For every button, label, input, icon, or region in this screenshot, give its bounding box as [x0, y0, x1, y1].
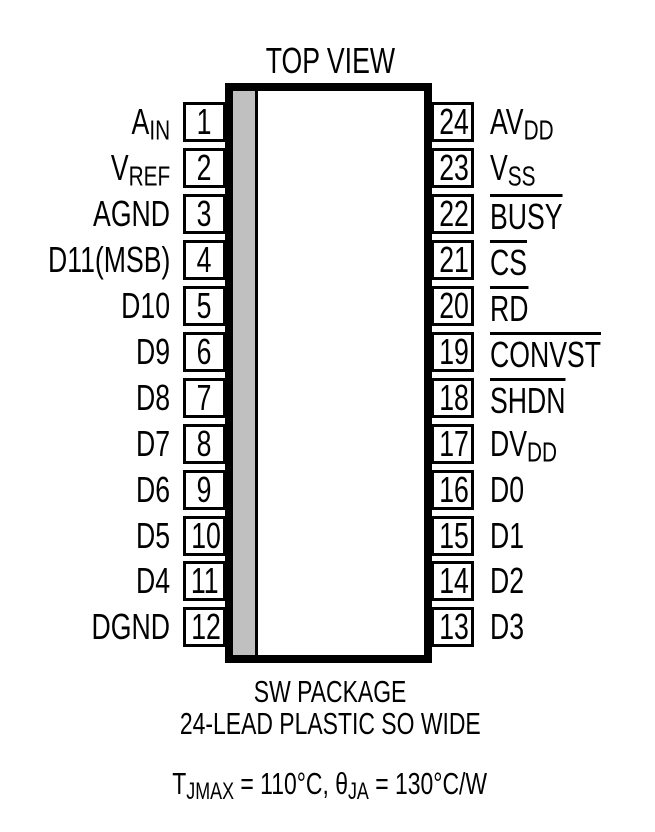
pin-11-label-text: D4	[136, 560, 170, 601]
pin-17-label: DVDD	[490, 424, 655, 464]
pin-8-label: D7	[0, 424, 170, 464]
pin-17-box: 17	[431, 424, 474, 464]
pin-15-number: 15	[439, 519, 469, 552]
pin-19-label: CONVST	[490, 332, 655, 372]
pin-22-number: 22	[439, 197, 469, 230]
pin-16-label: D0	[490, 470, 655, 510]
pin-16-box: 16	[431, 470, 474, 510]
pin-16-label-text: D0	[490, 469, 524, 510]
pin-23-label-text: V	[490, 147, 508, 188]
pin-24-label-sub: DD	[524, 115, 554, 146]
pin-17-label-sub: DD	[527, 437, 557, 468]
pin-15-label-text: D1	[490, 515, 524, 556]
pin-7-label-text: D8	[136, 377, 170, 418]
pin-4-label-text: D11(MSB)	[48, 239, 170, 280]
pin-5-label: D10	[0, 286, 170, 326]
pin-7-box: 7	[183, 378, 226, 418]
pin-20-number: 20	[439, 289, 469, 322]
pin-2-label-text: V	[111, 147, 129, 188]
pin-24-label-text: AV	[490, 101, 524, 142]
pin-21-box: 21	[431, 240, 474, 280]
pin-23-label: VSS	[490, 148, 655, 188]
pin-8-label-text: D7	[136, 423, 170, 464]
pin-10-box: 10	[183, 516, 226, 556]
pin-1-box: 1	[183, 102, 226, 142]
pin-9-number: 9	[197, 473, 212, 506]
pin-22-label: BUSY	[490, 194, 655, 234]
pin-2-box: 2	[183, 148, 226, 188]
pin-19-number: 19	[439, 335, 469, 368]
pin1-indicator-stripe	[233, 91, 258, 655]
pin-8-number: 8	[197, 427, 212, 460]
pin-14-label: D2	[490, 561, 655, 601]
pin-14-label-text: D2	[490, 560, 524, 601]
pin-24-label: AVDD	[490, 102, 655, 142]
pin-19-box: 19	[431, 332, 474, 372]
pin-12-label-text: DGND	[92, 606, 170, 647]
pin-15-label: D1	[490, 516, 655, 556]
pinout-diagram: TOP VIEW AIN VREF AGND D11(MSB) D10 D9 D…	[0, 0, 655, 832]
pin-7-number: 7	[197, 381, 212, 414]
pin-8-box: 8	[183, 424, 226, 464]
top-view-text: TOP VIEW	[265, 41, 394, 81]
pin-2-number: 2	[197, 151, 212, 184]
thermal-note-text: TJMAX = 110°C, θJA = 130°C/W	[173, 764, 488, 812]
pin-18-number: 18	[439, 381, 469, 414]
pin-18-label-text: SHDN	[490, 378, 565, 421]
pin-10-number: 10	[191, 519, 221, 552]
pin-15-box: 15	[431, 516, 474, 556]
thermal-note: TJMAX = 110°C, θJA = 130°C/W	[0, 764, 655, 804]
pin-20-label-text: RD	[490, 286, 528, 329]
pin-21-label-text: CS	[490, 240, 527, 283]
pin-10-label: D5	[0, 516, 170, 556]
package-description-text: 24-LEAD PLASTIC SO WIDE	[180, 704, 481, 744]
pin-5-box: 5	[183, 286, 226, 326]
pin-6-label-text: D9	[136, 331, 170, 372]
pin-18-label: SHDN	[490, 378, 655, 418]
pin-3-number: 3	[197, 197, 212, 230]
pin-10-label-text: D5	[136, 515, 170, 556]
pin-4-label: D11(MSB)	[0, 240, 170, 280]
pin-18-box: 18	[431, 378, 474, 418]
pin-23-label-sub: SS	[508, 161, 536, 192]
pin-4-number: 4	[197, 243, 212, 276]
pin-7-label: D8	[0, 378, 170, 418]
pin-13-label: D3	[490, 607, 655, 647]
pin-5-number: 5	[197, 289, 212, 322]
pin-22-label-text: BUSY	[490, 194, 563, 237]
pin-9-label: D6	[0, 470, 170, 510]
pin-9-label-text: D6	[136, 469, 170, 510]
pin-14-number: 14	[439, 564, 469, 597]
pin-23-number: 23	[439, 151, 469, 184]
pin-5-label-text: D10	[121, 285, 170, 326]
pin-11-label: D4	[0, 561, 170, 601]
pin-19-label-text: CONVST	[490, 332, 601, 375]
pin-13-number: 13	[439, 610, 469, 643]
pin-24-box: 24	[431, 102, 474, 142]
pin-17-number: 17	[439, 427, 469, 460]
pin-3-box: 3	[183, 194, 226, 234]
pin-23-box: 23	[431, 148, 474, 188]
pin-13-box: 13	[431, 607, 474, 647]
pin-1-label-text: A	[131, 101, 149, 142]
pin-2-label-sub: REF	[128, 161, 170, 192]
pin-2-label: VREF	[0, 148, 170, 188]
pin-1-label-sub: IN	[149, 115, 170, 146]
pin-24-number: 24	[439, 105, 469, 138]
pin-12-label: DGND	[0, 607, 170, 647]
pin-1-label: AIN	[0, 102, 170, 142]
pin-12-number: 12	[191, 610, 221, 643]
pin-3-label: AGND	[0, 194, 170, 234]
pin-3-label-text: AGND	[93, 193, 170, 234]
pin-21-label: CS	[490, 240, 655, 280]
pin-4-box: 4	[183, 240, 226, 280]
pin-6-box: 6	[183, 332, 226, 372]
package-description: 24-LEAD PLASTIC SO WIDE	[0, 704, 655, 744]
pin-9-box: 9	[183, 470, 226, 510]
pin-20-label: RD	[490, 286, 655, 326]
pin-22-box: 22	[431, 194, 474, 234]
pin-6-number: 6	[197, 335, 212, 368]
pin-21-number: 21	[439, 243, 469, 276]
pin-17-label-text: DV	[490, 423, 527, 464]
ic-body	[225, 83, 432, 663]
pin-12-box: 12	[183, 607, 226, 647]
pin-13-label-text: D3	[490, 606, 524, 647]
pin-1-number: 1	[197, 105, 212, 138]
pin-14-box: 14	[431, 561, 474, 601]
pin-11-box: 11	[183, 561, 226, 601]
top-view-label: TOP VIEW	[0, 41, 655, 81]
pin-20-box: 20	[431, 286, 474, 326]
pin-11-number: 11	[191, 564, 219, 597]
pin-16-number: 16	[439, 473, 469, 506]
pin-6-label: D9	[0, 332, 170, 372]
